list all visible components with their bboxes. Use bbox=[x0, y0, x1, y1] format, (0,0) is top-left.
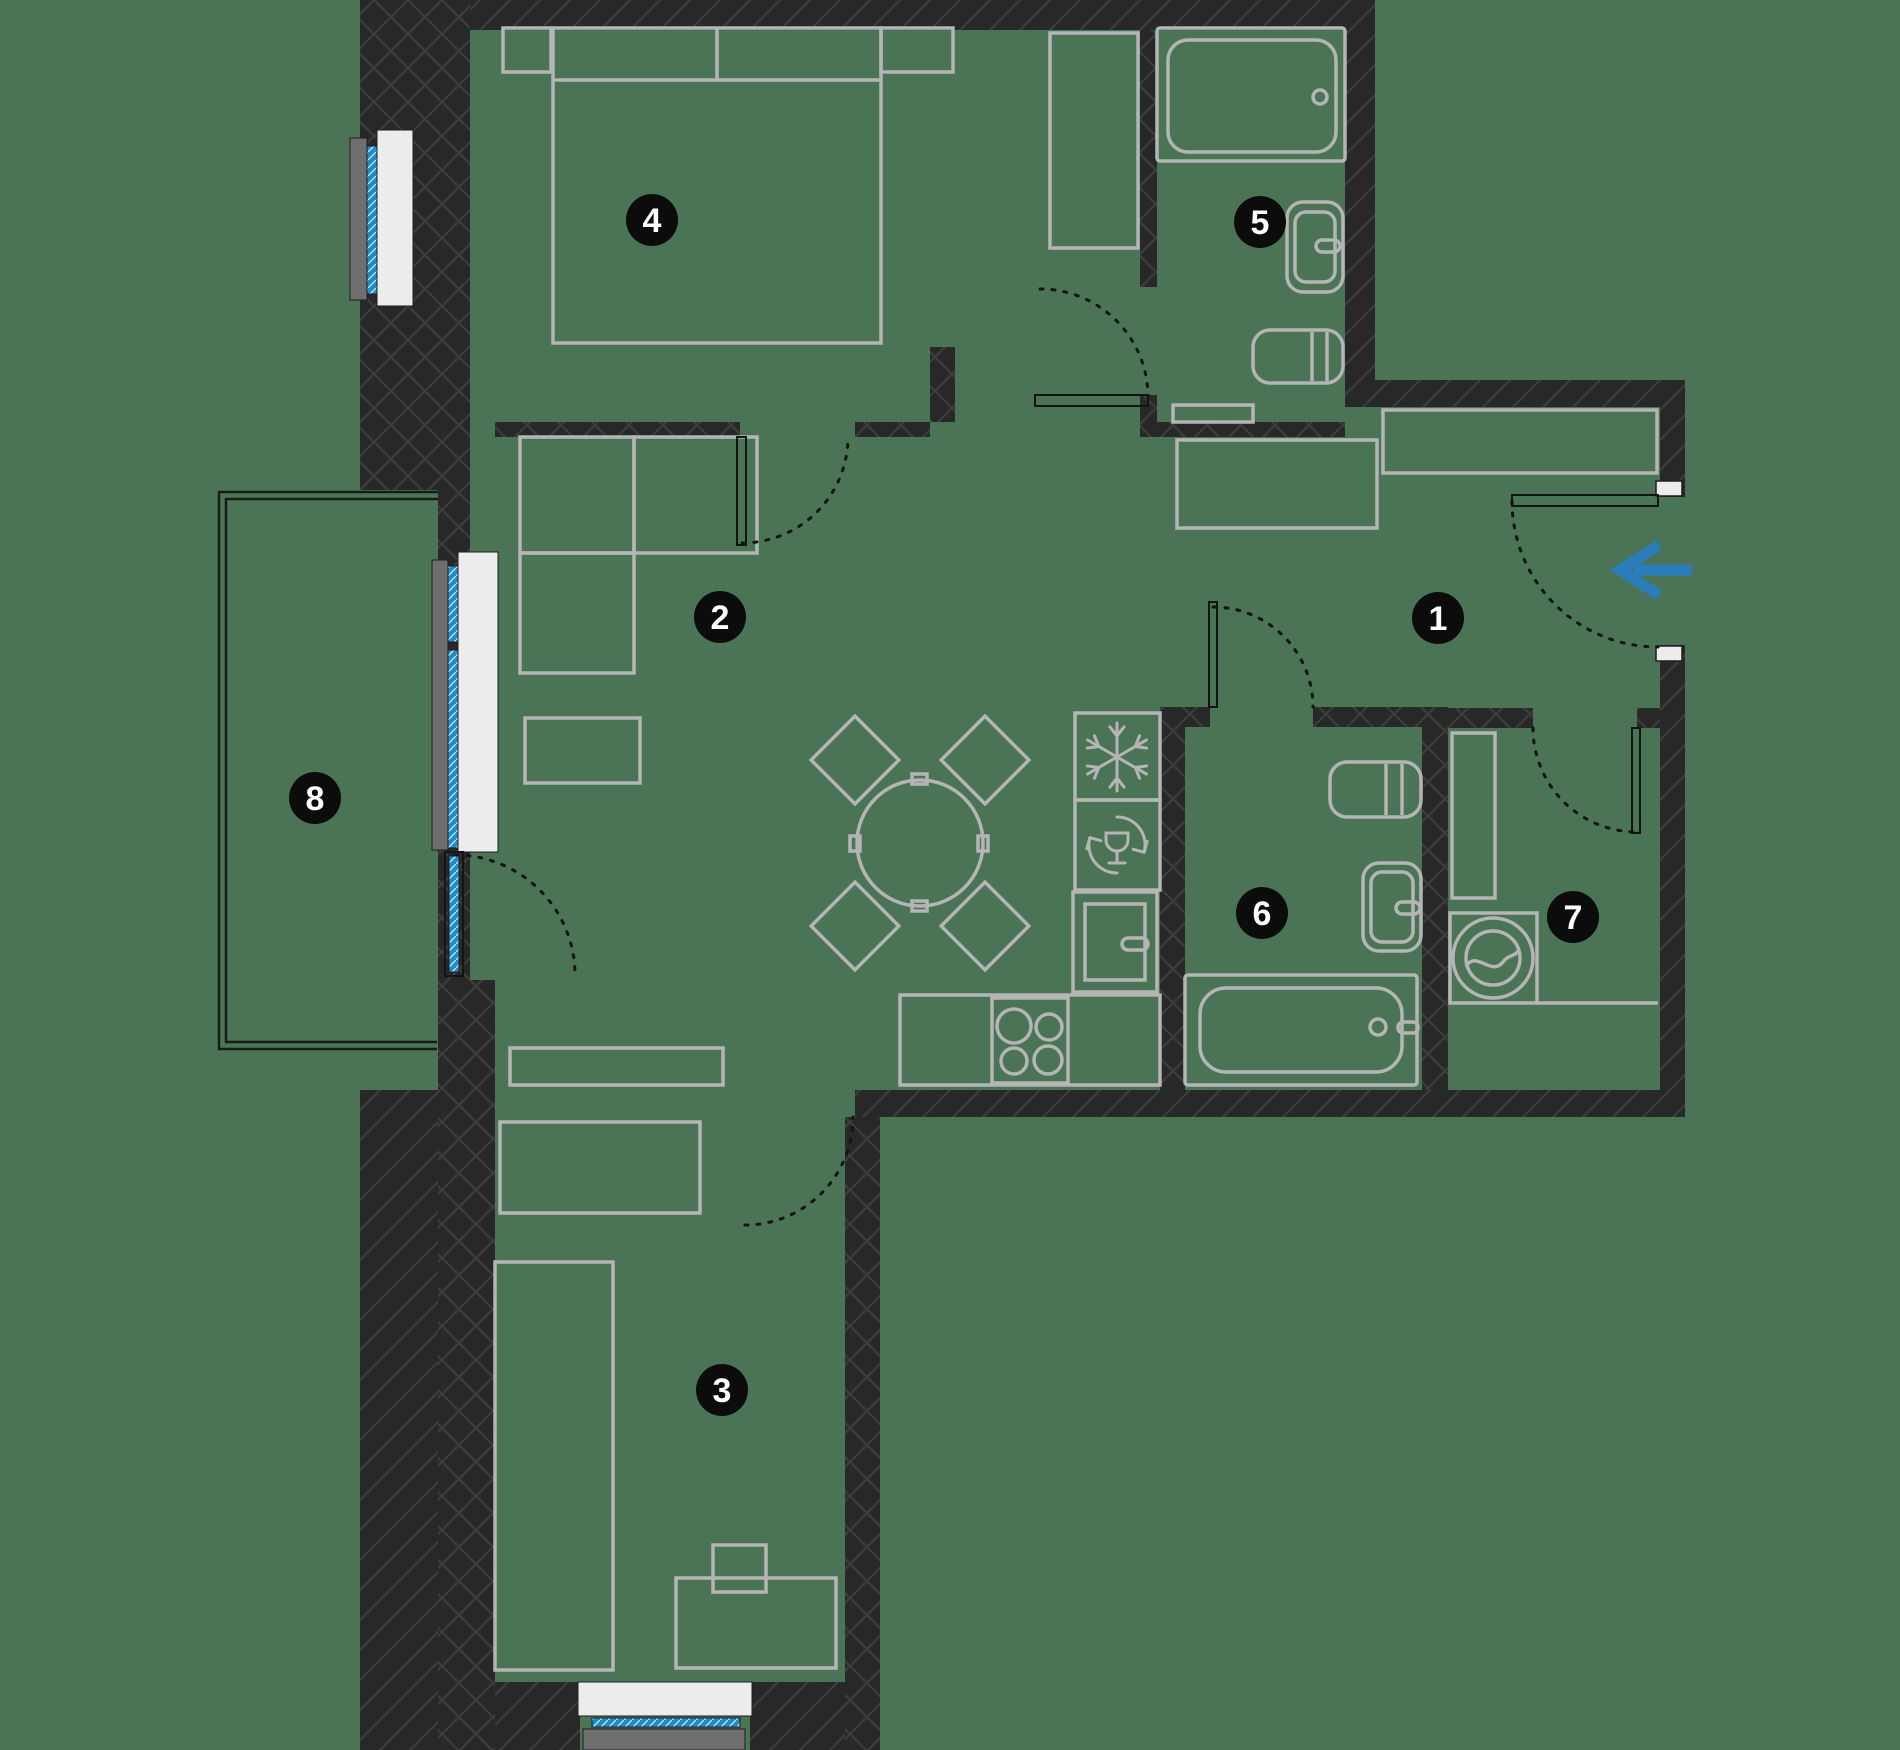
room-marker-label: 8 bbox=[306, 780, 325, 818]
window-sill bbox=[458, 552, 498, 852]
room-marker-7: 7 bbox=[1547, 891, 1599, 943]
floor-plan-svg: 12345678 bbox=[0, 0, 1900, 1750]
room-marker-label: 4 bbox=[643, 202, 662, 240]
window-sill bbox=[578, 1682, 752, 1716]
room-marker-8: 8 bbox=[289, 772, 341, 824]
room-marker-label: 3 bbox=[713, 1372, 732, 1410]
room-marker-1: 1 bbox=[1412, 592, 1464, 644]
window-sill bbox=[377, 130, 413, 306]
room-marker-label: 5 bbox=[1251, 204, 1270, 242]
room-marker-label: 2 bbox=[711, 599, 730, 637]
window-ledge bbox=[432, 560, 448, 850]
room-marker-5: 5 bbox=[1234, 196, 1286, 248]
room-marker-2: 2 bbox=[694, 591, 746, 643]
room-marker-label: 1 bbox=[1429, 600, 1448, 638]
door-jamb-cap bbox=[1656, 646, 1682, 661]
room-marker-label: 6 bbox=[1253, 895, 1272, 933]
window-ledge bbox=[350, 138, 367, 300]
window-ledge bbox=[583, 1729, 745, 1750]
room-marker-6: 6 bbox=[1236, 887, 1288, 939]
room-marker-3: 3 bbox=[696, 1364, 748, 1416]
background bbox=[0, 0, 1900, 1750]
room-marker-4: 4 bbox=[626, 194, 678, 246]
floor-plan: 12345678 bbox=[0, 0, 1900, 1750]
door-jamb-cap bbox=[1656, 481, 1682, 496]
room-marker-label: 7 bbox=[1564, 899, 1583, 937]
